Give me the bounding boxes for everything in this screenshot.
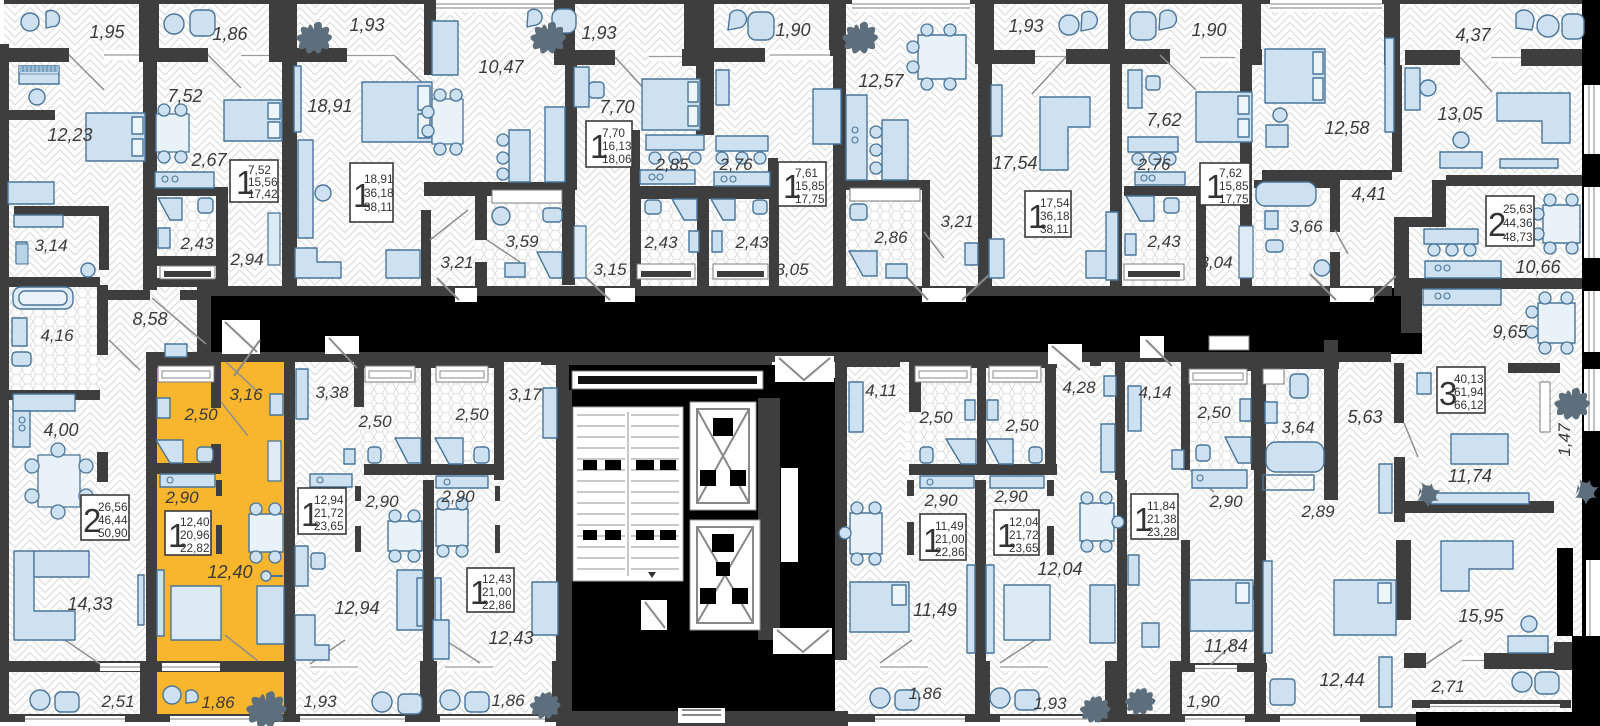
svg-text:2,50: 2,50 — [918, 408, 953, 427]
svg-text:4,41: 4,41 — [1351, 184, 1386, 204]
svg-text:1,93: 1,93 — [581, 23, 616, 43]
svg-text:2,86: 2,86 — [873, 228, 908, 247]
svg-text:7,70: 7,70 — [602, 126, 625, 140]
svg-text:14,33: 14,33 — [67, 594, 112, 614]
svg-text:61,94: 61,94 — [1454, 385, 1484, 399]
svg-text:11,84: 11,84 — [1147, 499, 1176, 513]
svg-text:3,21: 3,21 — [940, 212, 973, 231]
svg-text:3,66: 3,66 — [1289, 217, 1323, 236]
svg-text:2,43: 2,43 — [179, 234, 214, 253]
svg-text:1,90: 1,90 — [1186, 692, 1220, 711]
svg-text:12,57: 12,57 — [858, 71, 904, 91]
svg-text:2,50: 2,50 — [357, 412, 392, 431]
svg-text:17,54: 17,54 — [1040, 196, 1070, 210]
svg-text:3,14: 3,14 — [34, 236, 67, 255]
svg-text:15,95: 15,95 — [1458, 606, 1504, 626]
svg-text:66,12: 66,12 — [1454, 398, 1484, 412]
svg-text:4,11: 4,11 — [865, 381, 897, 400]
svg-text:17,54: 17,54 — [992, 153, 1037, 173]
svg-text:11,74: 11,74 — [1448, 466, 1492, 486]
svg-text:5,63: 5,63 — [1347, 407, 1382, 427]
svg-text:2,90: 2,90 — [440, 487, 475, 506]
svg-text:2,89: 2,89 — [1300, 502, 1335, 521]
svg-text:2,71: 2,71 — [1430, 677, 1464, 696]
svg-text:2,90: 2,90 — [164, 488, 199, 507]
svg-text:12,40: 12,40 — [207, 562, 252, 582]
svg-text:36,18: 36,18 — [1040, 209, 1070, 223]
svg-text:12,94: 12,94 — [314, 493, 344, 507]
svg-text:15,85: 15,85 — [1219, 179, 1249, 193]
svg-text:21,72: 21,72 — [1009, 528, 1039, 542]
svg-text:4,14: 4,14 — [1138, 383, 1171, 402]
svg-text:21,72: 21,72 — [314, 506, 344, 520]
svg-text:2,76: 2,76 — [718, 155, 753, 174]
svg-text:21,00: 21,00 — [935, 532, 965, 546]
svg-text:7,70: 7,70 — [599, 97, 634, 117]
svg-text:10,66: 10,66 — [1515, 257, 1561, 277]
svg-text:12,40: 12,40 — [180, 515, 210, 529]
svg-text:23,65: 23,65 — [314, 519, 344, 533]
svg-text:11,49: 11,49 — [913, 600, 957, 620]
svg-text:11,84: 11,84 — [1204, 636, 1248, 656]
svg-text:22,86: 22,86 — [935, 545, 965, 559]
svg-text:12,43: 12,43 — [488, 628, 533, 648]
svg-text:2,50: 2,50 — [454, 405, 489, 424]
svg-text:36,18: 36,18 — [364, 186, 394, 200]
svg-text:2,90: 2,90 — [993, 487, 1028, 506]
svg-text:4,28: 4,28 — [1062, 378, 1096, 397]
svg-text:46,44: 46,44 — [98, 513, 128, 527]
svg-text:50,90: 50,90 — [98, 526, 128, 540]
svg-text:2,90: 2,90 — [364, 492, 399, 511]
svg-text:20,96: 20,96 — [180, 528, 210, 542]
svg-text:13,05: 13,05 — [1437, 104, 1483, 124]
svg-text:1,93: 1,93 — [1033, 694, 1067, 713]
svg-text:2,43: 2,43 — [1146, 232, 1181, 251]
svg-text:44,36: 44,36 — [1503, 216, 1533, 230]
svg-text:16,13: 16,13 — [602, 139, 632, 153]
svg-text:12,94: 12,94 — [334, 598, 379, 618]
svg-text:38,11: 38,11 — [1040, 222, 1069, 236]
svg-text:3,59: 3,59 — [505, 232, 539, 251]
svg-text:2,43: 2,43 — [734, 233, 769, 252]
svg-text:48,73: 48,73 — [1503, 230, 1533, 244]
svg-text:2,50: 2,50 — [1196, 403, 1231, 422]
svg-text:7,62: 7,62 — [1219, 166, 1242, 180]
svg-text:22,82: 22,82 — [180, 541, 210, 555]
svg-text:7,61: 7,61 — [795, 166, 818, 180]
svg-text:3,64: 3,64 — [1281, 418, 1314, 437]
svg-text:21,38: 21,38 — [1147, 512, 1177, 526]
svg-text:12,58: 12,58 — [1324, 118, 1369, 138]
svg-text:15,85: 15,85 — [795, 179, 825, 193]
svg-text:40,13: 40,13 — [1454, 372, 1484, 386]
svg-text:17,75: 17,75 — [795, 192, 825, 206]
svg-text:1,47: 1,47 — [1555, 423, 1574, 457]
svg-text:2,50: 2,50 — [1004, 416, 1039, 435]
svg-text:1,90: 1,90 — [1191, 20, 1226, 40]
svg-text:4,37: 4,37 — [1455, 25, 1491, 45]
svg-text:1,86: 1,86 — [201, 693, 235, 712]
svg-text:2,43: 2,43 — [643, 233, 678, 252]
svg-text:4,00: 4,00 — [43, 420, 78, 440]
svg-text:2,67: 2,67 — [190, 150, 227, 170]
svg-text:26,56: 26,56 — [98, 500, 128, 514]
svg-text:3,04: 3,04 — [1199, 253, 1232, 272]
svg-text:12,23: 12,23 — [47, 125, 92, 145]
svg-text:25,63: 25,63 — [1503, 202, 1533, 216]
svg-text:2,50: 2,50 — [183, 405, 218, 424]
svg-text:7,62: 7,62 — [1146, 110, 1181, 130]
svg-text:2,76: 2,76 — [1136, 155, 1171, 174]
svg-text:23,28: 23,28 — [1147, 525, 1177, 539]
svg-text:10,47: 10,47 — [478, 57, 524, 77]
svg-text:7,52: 7,52 — [167, 86, 202, 106]
svg-text:38,11: 38,11 — [364, 200, 393, 214]
svg-text:1,86: 1,86 — [212, 24, 248, 44]
svg-text:12,04: 12,04 — [1037, 559, 1082, 579]
svg-text:23,65: 23,65 — [1009, 541, 1039, 555]
svg-text:12,44: 12,44 — [1319, 670, 1364, 690]
svg-text:17,42: 17,42 — [248, 187, 278, 201]
svg-text:12,43: 12,43 — [482, 572, 512, 586]
svg-text:2,85: 2,85 — [654, 155, 689, 174]
svg-text:21,00: 21,00 — [482, 585, 512, 599]
svg-text:2,51: 2,51 — [100, 692, 134, 711]
svg-text:3,05: 3,05 — [775, 260, 809, 279]
svg-text:11,49: 11,49 — [935, 519, 964, 533]
svg-text:17,75: 17,75 — [1219, 192, 1249, 206]
svg-text:18,06: 18,06 — [602, 152, 632, 166]
svg-text:3,38: 3,38 — [315, 383, 349, 402]
svg-text:1,86: 1,86 — [908, 684, 942, 703]
svg-text:1,90: 1,90 — [775, 20, 810, 40]
svg-text:18,91: 18,91 — [364, 172, 394, 186]
svg-text:2,90: 2,90 — [1208, 492, 1243, 511]
svg-text:8,58: 8,58 — [132, 309, 167, 329]
svg-text:3,16: 3,16 — [229, 385, 263, 404]
svg-text:3,21: 3,21 — [440, 253, 473, 272]
svg-text:1,95: 1,95 — [89, 22, 125, 42]
svg-text:18,91: 18,91 — [307, 96, 352, 116]
svg-text:1,93: 1,93 — [303, 692, 337, 711]
svg-text:3,15: 3,15 — [593, 260, 627, 279]
svg-text:4,16: 4,16 — [40, 326, 74, 345]
svg-text:1,93: 1,93 — [1008, 16, 1043, 36]
svg-text:2,90: 2,90 — [923, 491, 958, 510]
svg-text:9,65: 9,65 — [1492, 322, 1528, 342]
svg-text:1,86: 1,86 — [491, 691, 525, 710]
svg-text:1,93: 1,93 — [349, 15, 384, 35]
svg-text:22,86: 22,86 — [482, 598, 512, 612]
svg-text:12,04: 12,04 — [1009, 515, 1039, 529]
svg-text:2,94: 2,94 — [229, 250, 263, 269]
svg-text:3,17: 3,17 — [508, 385, 542, 404]
